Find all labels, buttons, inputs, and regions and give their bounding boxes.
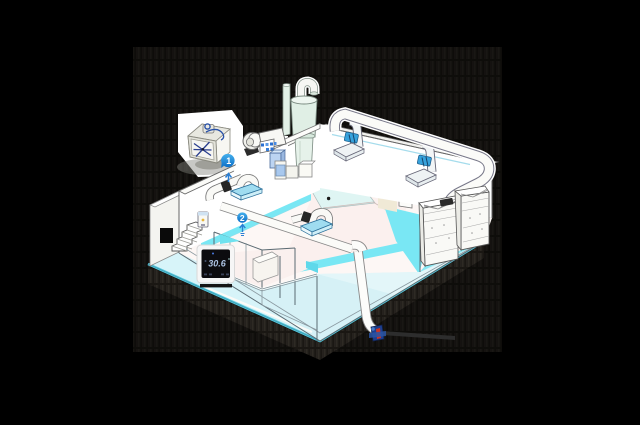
svg-text:2: 2 <box>240 213 245 223</box>
svg-text:1: 1 <box>226 156 231 166</box>
svg-text:30.6: 30.6 <box>208 259 227 269</box>
